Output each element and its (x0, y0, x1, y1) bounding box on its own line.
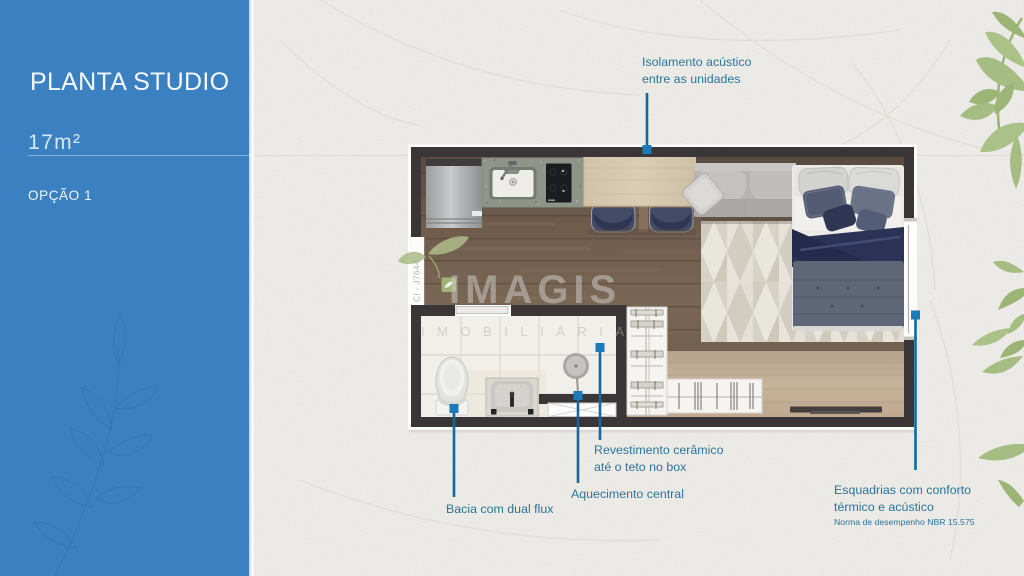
svg-text:IMOBILIÁRIA: IMOBILIÁRIA (421, 324, 637, 339)
svg-text:térmico e acústico: térmico e acústico (834, 500, 934, 514)
svg-text:Bacia com dual flux: Bacia com dual flux (446, 502, 554, 516)
svg-text:Norma de desempenho NBR 15.575: Norma de desempenho NBR 15.575 (834, 517, 975, 527)
svg-text:Isolamento acústico: Isolamento acústico (642, 55, 752, 69)
svg-text:entre as unidades: entre as unidades (642, 72, 741, 86)
svg-text:Revestimento cerâmico: Revestimento cerâmico (594, 443, 724, 457)
svg-text:Esquadrias com conforto: Esquadrias com conforto (834, 483, 971, 497)
svg-text:IMAGIS: IMAGIS (449, 268, 621, 312)
svg-text:Aquecimento central: Aquecimento central (571, 487, 684, 501)
svg-text:até o teto no box: até o teto no box (594, 460, 687, 474)
svg-text:CI - J7644: CI - J7644 (413, 260, 422, 302)
